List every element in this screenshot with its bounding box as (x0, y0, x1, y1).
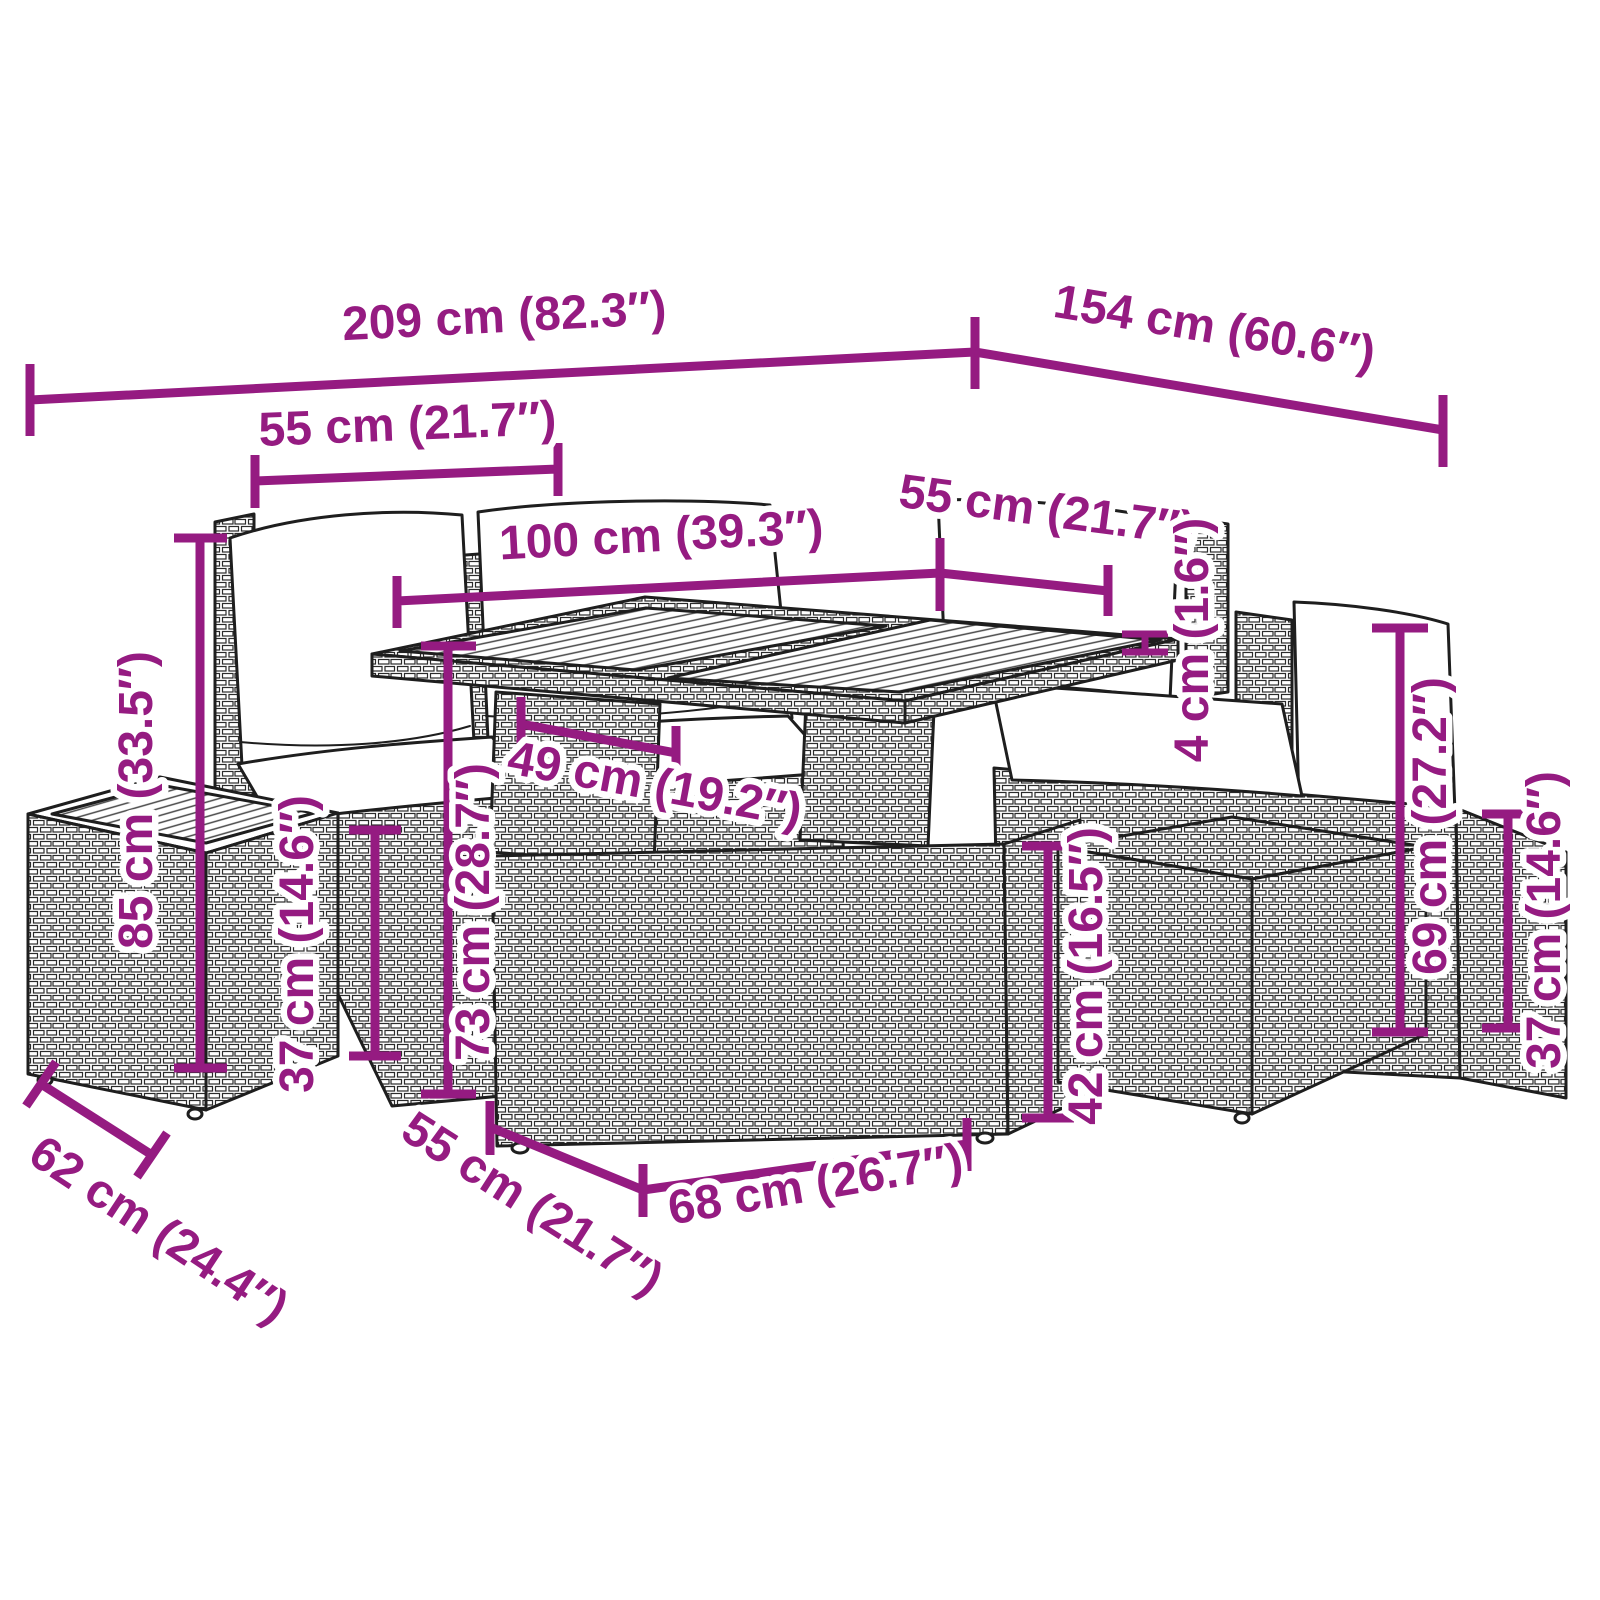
dimension-label-back-height: 69 cm (27.2″) (1404, 677, 1457, 975)
dimension-label-total-height: 85 cm (33.5″) (110, 651, 163, 949)
dimension-top-depth: 154 cm (60.6″) (975, 275, 1443, 467)
furniture-dimension-diagram: 209 cm (82.3″) 154 cm (60.6″) 55 cm (21.… (0, 0, 1600, 1600)
dimension-label-table-base-width: 68 cm (26.7″) (664, 1134, 966, 1235)
dimension-label-ottoman-depth: 62 cm (24.4″) (20, 1126, 298, 1335)
right-ottoman-drawing (1058, 817, 1426, 1123)
diagram-canvas: 209 cm (82.3″) 154 cm (60.6″) 55 cm (21.… (0, 0, 1600, 1600)
dimension-label-tabletop-thickness: 4 cm (1.6″) (1166, 518, 1219, 762)
dimension-label-table-height: 73 cm (28.7″) (447, 763, 500, 1061)
dimension-label-top-width: 209 cm (82.3″) (341, 282, 668, 351)
dimension-ottoman-depth: 62 cm (24.4″) (20, 1062, 298, 1334)
dimension-label-top-depth: 154 cm (60.6″) (1050, 275, 1379, 380)
dimension-label-right-seat-height: 37 cm (14.6″) (1518, 771, 1571, 1069)
dimension-left-seat-width: 55 cm (21.7″) (255, 392, 558, 508)
dimension-label-left-seat-width: 55 cm (21.7″) (258, 392, 558, 457)
dimension-label-left-seat-height: 37 cm (14.6″) (271, 795, 324, 1093)
dimension-label-right-ottoman-height: 42 cm (16.5″) (1060, 827, 1113, 1125)
